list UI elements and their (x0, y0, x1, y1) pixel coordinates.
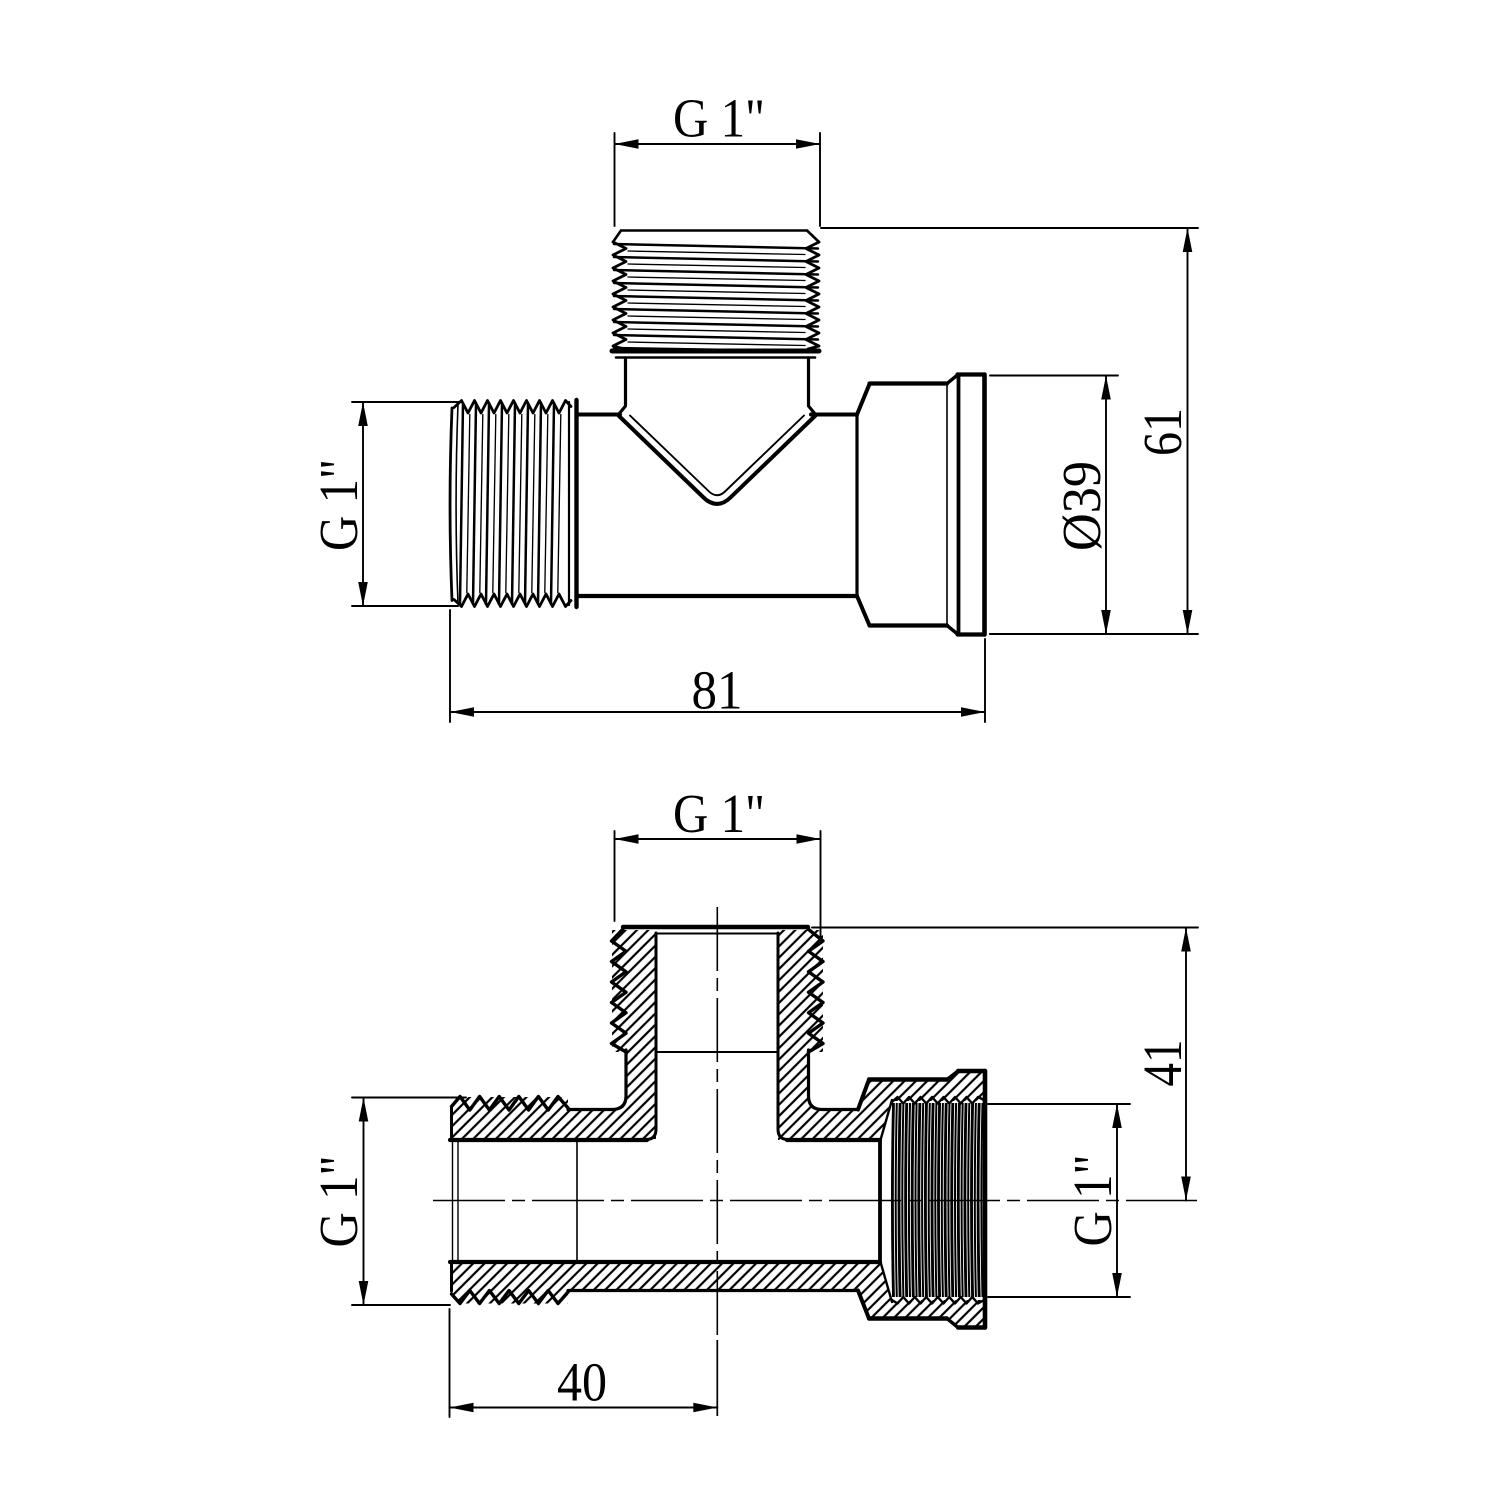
svg-text:41: 41 (1132, 1040, 1193, 1087)
svg-text:81: 81 (692, 660, 743, 721)
svg-text:G 1": G 1" (308, 1156, 369, 1248)
svg-text:G 1": G 1" (308, 459, 369, 551)
svg-text:61: 61 (1132, 408, 1193, 456)
svg-text:Ø39: Ø39 (1051, 461, 1112, 551)
svg-text:G 1": G 1" (673, 783, 765, 844)
svg-text:G 1": G 1" (1062, 1155, 1123, 1247)
svg-text:G 1": G 1" (673, 88, 765, 149)
svg-text:40: 40 (557, 1352, 607, 1413)
